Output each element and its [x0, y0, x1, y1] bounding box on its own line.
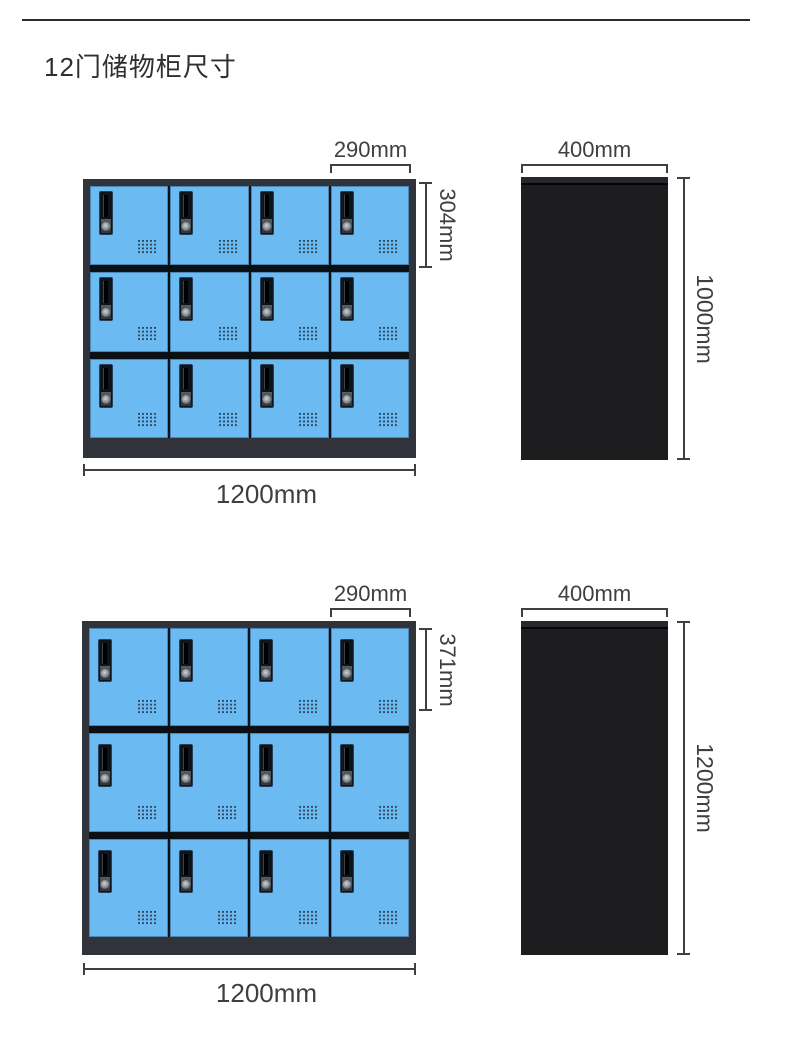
vent-holes-icon — [298, 699, 319, 714]
vent-holes-icon — [378, 326, 399, 341]
door-lock-icon — [262, 308, 271, 317]
door-handle-icon — [98, 850, 112, 893]
door-lock-icon — [342, 774, 351, 783]
side-depth-dimension: 400mm — [521, 139, 668, 173]
door-lock-icon — [101, 880, 110, 889]
locker-door — [251, 272, 329, 351]
door-grid — [89, 628, 409, 937]
door-lock-icon — [182, 308, 191, 317]
door-width-label: 290mm — [330, 583, 411, 605]
locker-door — [89, 839, 168, 937]
locker-door — [170, 186, 248, 265]
overall-width-dimension: 1200mm — [83, 963, 416, 1013]
door-handle-icon — [340, 639, 354, 682]
overall-width-dimension: 1200mm — [83, 464, 416, 514]
door-lock-icon — [262, 774, 271, 783]
dimension-bracket — [330, 164, 411, 173]
top-divider-line — [22, 19, 750, 21]
locker-door — [170, 628, 249, 726]
vent-holes-icon — [378, 805, 399, 820]
door-lock-icon — [342, 222, 351, 231]
door-handle-icon — [340, 277, 354, 321]
vent-holes-icon — [137, 805, 158, 820]
locker-side-view — [521, 177, 668, 460]
door-handle-icon — [98, 744, 112, 787]
vent-holes-icon — [137, 326, 158, 341]
side-depth-label: 400mm — [521, 139, 668, 161]
locker-door — [90, 186, 168, 265]
door-handle-icon — [99, 364, 113, 408]
locker-door — [331, 186, 409, 265]
vent-holes-icon — [378, 412, 399, 427]
page-title: 12门储物柜尺寸 — [44, 47, 237, 84]
door-lock-icon — [181, 669, 190, 678]
door-width-dimension: 290mm — [330, 583, 411, 617]
door-lock-icon — [102, 222, 111, 231]
vent-holes-icon — [137, 239, 158, 254]
dimension-line — [683, 621, 685, 955]
door-height-label: 304mm — [434, 188, 460, 261]
door-lock-icon — [182, 395, 191, 404]
vent-holes-icon — [218, 326, 239, 341]
vent-holes-icon — [378, 699, 399, 714]
door-height-dimension: 304mm — [419, 182, 469, 268]
door-lock-icon — [342, 395, 351, 404]
door-handle-icon — [259, 850, 273, 893]
door-lock-icon — [262, 395, 271, 404]
vent-holes-icon — [217, 699, 238, 714]
door-lock-icon — [342, 308, 351, 317]
vent-holes-icon — [137, 910, 158, 925]
door-lock-icon — [102, 395, 111, 404]
dimension-line — [425, 628, 427, 711]
door-handle-icon — [179, 277, 193, 321]
vent-holes-icon — [298, 412, 319, 427]
locker-door — [251, 186, 329, 265]
side-height-label: 1200mm — [692, 743, 718, 832]
door-handle-icon — [340, 744, 354, 787]
door-lock-icon — [262, 880, 271, 889]
locker-door — [331, 359, 409, 438]
door-handle-icon — [259, 744, 273, 787]
locker-figure-1200mm: 290mm 400mm 371mm 1200mm 1200mm — [0, 0, 790, 1053]
dimension-bracket — [330, 608, 411, 617]
locker-figure-1000mm: 290mm 400mm 304mm 1200mm 1000mm — [0, 0, 790, 1053]
door-handle-icon — [340, 364, 354, 408]
door-handle-icon — [340, 191, 354, 235]
locker-door — [331, 733, 410, 831]
door-handle-icon — [99, 191, 113, 235]
door-handle-icon — [260, 277, 274, 321]
side-height-dimension: 1200mm — [677, 621, 727, 955]
overall-width-label: 1200mm — [100, 479, 433, 510]
locker-door — [90, 359, 168, 438]
door-width-label: 290mm — [330, 139, 411, 161]
vent-holes-icon — [137, 412, 158, 427]
locker-front-view — [82, 621, 416, 955]
side-height-dimension: 1000mm — [677, 177, 727, 460]
dimension-line — [425, 182, 427, 268]
door-handle-icon — [99, 277, 113, 321]
vent-holes-icon — [378, 239, 399, 254]
dimension-bracket — [521, 164, 668, 173]
locker-door — [331, 839, 410, 937]
vent-holes-icon — [298, 326, 319, 341]
door-handle-icon — [260, 191, 274, 235]
side-depth-dimension: 400mm — [521, 583, 668, 617]
door-width-dimension: 290mm — [330, 139, 411, 173]
locker-door — [250, 839, 329, 937]
vent-holes-icon — [217, 805, 238, 820]
locker-door — [250, 733, 329, 831]
door-lock-icon — [102, 308, 111, 317]
door-height-label: 371mm — [434, 633, 460, 706]
vent-holes-icon — [218, 412, 239, 427]
vent-holes-icon — [298, 910, 319, 925]
door-lock-icon — [342, 669, 351, 678]
door-lock-icon — [181, 774, 190, 783]
locker-door — [331, 628, 410, 726]
side-height-label: 1000mm — [692, 274, 718, 363]
locker-door — [170, 359, 248, 438]
door-handle-icon — [179, 191, 193, 235]
locker-front-view — [83, 179, 416, 458]
vent-holes-icon — [217, 910, 238, 925]
dimension-line — [83, 968, 416, 970]
dimension-line — [683, 177, 685, 460]
product-dimension-sheet: 12门储物柜尺寸 290mm 400mm 304mm 1200mm 1000mm — [0, 0, 790, 1053]
locker-door — [170, 272, 248, 351]
door-lock-icon — [262, 669, 271, 678]
door-height-dimension: 371mm — [419, 628, 469, 711]
door-handle-icon — [260, 364, 274, 408]
vent-holes-icon — [298, 805, 319, 820]
locker-door — [90, 272, 168, 351]
locker-door — [251, 359, 329, 438]
locker-door — [250, 628, 329, 726]
dimension-line — [83, 469, 416, 471]
vent-holes-icon — [137, 699, 158, 714]
door-handle-icon — [179, 744, 193, 787]
locker-door — [89, 733, 168, 831]
vent-holes-icon — [218, 239, 239, 254]
door-lock-icon — [101, 774, 110, 783]
door-lock-icon — [101, 669, 110, 678]
locker-side-view — [521, 621, 668, 955]
door-handle-icon — [340, 850, 354, 893]
door-handle-icon — [179, 639, 193, 682]
door-handle-icon — [259, 639, 273, 682]
door-lock-icon — [182, 222, 191, 231]
locker-door — [170, 839, 249, 937]
overall-width-label: 1200mm — [100, 978, 433, 1009]
vent-holes-icon — [378, 910, 399, 925]
door-lock-icon — [342, 880, 351, 889]
locker-door — [170, 733, 249, 831]
door-handle-icon — [98, 639, 112, 682]
locker-door — [89, 628, 168, 726]
door-lock-icon — [262, 222, 271, 231]
door-handle-icon — [179, 364, 193, 408]
door-grid — [90, 186, 409, 438]
door-handle-icon — [179, 850, 193, 893]
locker-door — [331, 272, 409, 351]
vent-holes-icon — [298, 239, 319, 254]
dimension-bracket — [521, 608, 668, 617]
door-lock-icon — [181, 880, 190, 889]
side-depth-label: 400mm — [521, 583, 668, 605]
